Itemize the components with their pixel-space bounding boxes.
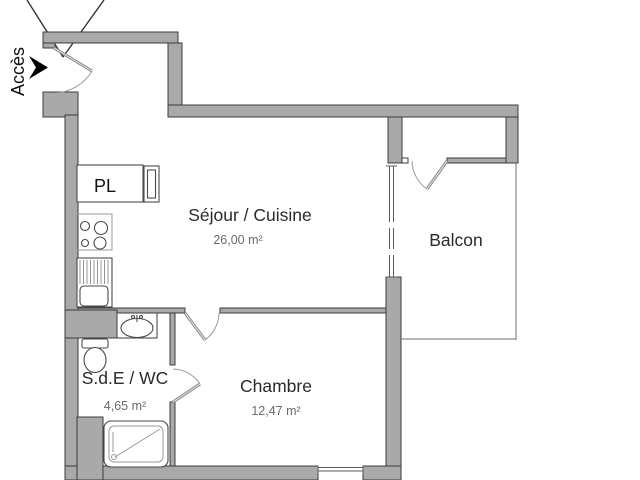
bathroom-name: S.d.E / WC [82,368,169,388]
balcony-name: Balcon [429,230,483,250]
living-room-area: 26,00 m² [213,233,262,247]
wall-kitchen-bath-block [65,310,117,338]
wall-entry-jamb-top [43,43,55,48]
balcony-door-swing [412,161,447,189]
washbasin-icon [117,313,157,338]
wall-balcony-door-jamb [402,158,408,163]
stove-icon [77,214,112,250]
wall-bottom-right [363,466,401,480]
wall-notch-bottom [447,158,506,163]
bedroom-window [318,466,363,474]
closet-label: PL [94,176,116,196]
bedroom-door-swing [185,313,219,340]
entry-door-swing [54,48,92,93]
living-balcony-window [386,166,397,277]
wall-entry-jamb-bottom [43,92,78,117]
bathroom-area: 4,65 m² [104,399,146,413]
bedroom-area: 12,47 m² [251,404,300,418]
access-label: Accès [8,47,28,96]
wall-entry-top [43,32,178,43]
access-arrow-icon [29,56,48,79]
wall-shower-block [77,417,103,480]
sink-icon [77,258,112,307]
wall-bath-right-upper [170,313,175,365]
floor-plan: Accès PL Séjour / Cuisine 26,00 m² Balco… [0,0,640,480]
balcony-outline [401,163,516,340]
wall-sejour-top [168,105,518,117]
shower-icon [104,421,168,467]
wall-bath-right-lower [170,402,175,470]
wall-left [65,115,78,480]
bedroom-name: Chambre [240,376,312,396]
bathroom-door-swing [173,369,200,402]
wall-sejour-balcon-lower [386,277,401,480]
wall-sejour-chambre [220,308,386,313]
living-room-name: Séjour / Cuisine [188,205,312,225]
wall-notch-right [506,117,518,163]
wall-notch-left [388,117,402,163]
north-arrow-icon [27,0,104,57]
closet-pl [77,165,159,202]
